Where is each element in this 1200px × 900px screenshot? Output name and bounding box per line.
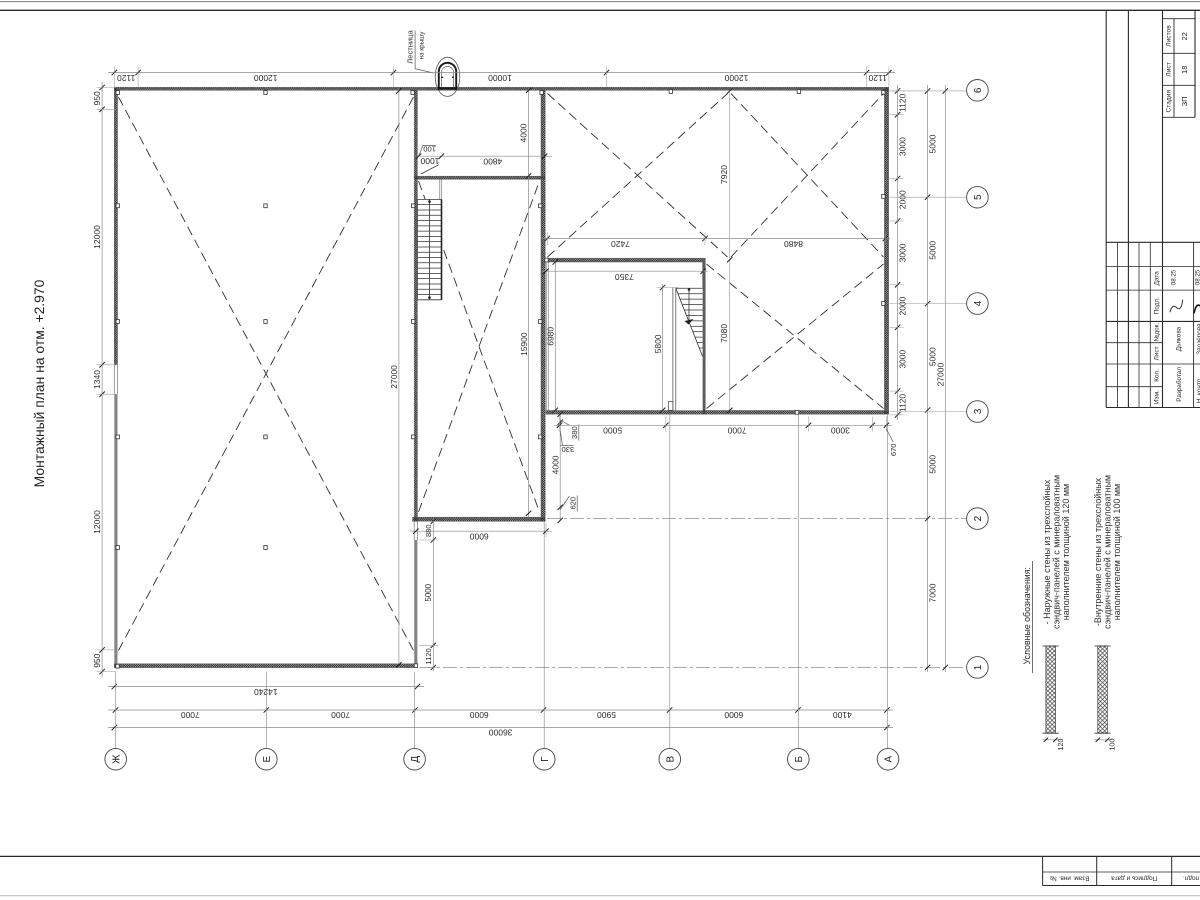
svg-text:наполнителем толщиной 120 мм: наполнителем толщиной 120 мм (1061, 484, 1071, 621)
svg-text:Заозёрова: Заозёрова (1196, 323, 1200, 355)
svg-text:6000: 6000 (469, 710, 488, 720)
svg-text:6000: 6000 (724, 710, 743, 720)
svg-text:-Внутренние стены из трехслойн: -Внутренние стены из трехслойных (1093, 477, 1103, 626)
svg-text:1: 1 (973, 664, 984, 670)
svg-text:1120: 1120 (897, 394, 907, 413)
svg-text:6000: 6000 (469, 531, 488, 541)
svg-text:22: 22 (1180, 32, 1189, 40)
svg-text:1120: 1120 (117, 73, 136, 83)
svg-text:6980: 6980 (546, 327, 556, 346)
svg-text:950: 950 (92, 653, 102, 667)
svg-text:08.25: 08.25 (1171, 269, 1178, 285)
svg-text:1340: 1340 (92, 370, 102, 389)
svg-text:7000: 7000 (927, 583, 937, 602)
svg-text:08.25: 08.25 (1195, 269, 1200, 285)
svg-text:Монтажный план на отм. +2.970: Монтажный план на отм. +2.970 (31, 279, 47, 487)
svg-text:330: 330 (562, 445, 575, 454)
svg-text:6: 6 (973, 87, 984, 93)
svg-text:5000: 5000 (927, 455, 937, 474)
svg-text:950: 950 (92, 91, 102, 105)
svg-text:Разработал: Разработал (1175, 367, 1183, 402)
svg-text:4000: 4000 (519, 123, 529, 142)
svg-text:12000: 12000 (92, 510, 102, 534)
svg-text:5000: 5000 (424, 583, 433, 601)
svg-text:3000: 3000 (897, 243, 907, 262)
svg-text:36000: 36000 (489, 728, 513, 738)
svg-text:Н. контр.: Н. контр. (1196, 377, 1200, 404)
svg-text:Е: Е (262, 756, 273, 763)
svg-text:4100: 4100 (833, 710, 852, 720)
svg-text:Дьякова: Дьякова (1175, 326, 1182, 351)
svg-text:4: 4 (973, 300, 984, 306)
svg-text:100: 100 (1108, 739, 1117, 751)
svg-text:670: 670 (889, 443, 898, 456)
svg-text:Изм.: Изм. (1154, 390, 1161, 404)
svg-text:7000: 7000 (331, 710, 350, 720)
svg-text:10000: 10000 (488, 73, 512, 83)
svg-text:Подп.: Подп. (1154, 297, 1161, 314)
svg-text:№док.: №док. (1154, 323, 1161, 342)
svg-text:12000: 12000 (92, 225, 102, 249)
svg-text:4000: 4000 (550, 455, 560, 474)
svg-text:2000: 2000 (897, 296, 907, 315)
svg-text:Условные обозначения:: Условные обозначения: (1022, 567, 1032, 664)
svg-text:880: 880 (424, 524, 433, 537)
svg-text:7080: 7080 (719, 324, 729, 343)
svg-text:2: 2 (973, 515, 984, 521)
svg-text:Кол.: Кол. (1154, 369, 1161, 382)
svg-text:7000: 7000 (727, 426, 746, 436)
svg-text:620: 620 (568, 497, 577, 510)
svg-text:Взам. инв. №: Взам. инв. № (1050, 875, 1090, 882)
svg-text:8480: 8480 (784, 239, 803, 249)
svg-text:15900: 15900 (519, 332, 529, 356)
svg-text:5900: 5900 (597, 710, 616, 720)
svg-text:Ж: Ж (111, 754, 122, 764)
svg-text:1120: 1120 (897, 93, 907, 112)
svg-text:сэндвич-панелей с минераловатн: сэндвич-панелей с минераловатным (1052, 475, 1062, 629)
svg-text:подл.: подл. (1183, 875, 1199, 882)
svg-text:5: 5 (973, 194, 984, 200)
svg-text:7920: 7920 (719, 165, 729, 184)
svg-text:2000: 2000 (897, 190, 907, 209)
svg-text:Дата: Дата (1154, 271, 1161, 286)
svg-text:Д: Д (410, 756, 421, 763)
svg-text:3000: 3000 (831, 426, 850, 436)
svg-text:3000: 3000 (897, 137, 907, 156)
svg-text:5000: 5000 (927, 134, 937, 153)
svg-text:Лестница: Лестница (405, 29, 414, 63)
svg-text:380: 380 (570, 426, 579, 439)
svg-text:7420: 7420 (611, 239, 630, 249)
svg-text:14240: 14240 (254, 687, 278, 697)
svg-text:3000: 3000 (897, 349, 907, 368)
svg-text:А: А (884, 756, 895, 763)
svg-text:Стадия: Стадия (1166, 90, 1173, 113)
svg-text:12000: 12000 (724, 73, 748, 83)
svg-text:18: 18 (1180, 65, 1189, 73)
svg-text:7350: 7350 (615, 272, 634, 282)
svg-text:4800: 4800 (483, 156, 502, 166)
svg-text:Листов: Листов (1166, 25, 1173, 47)
svg-text:на крышу: на крышу (418, 31, 425, 60)
svg-text:27000: 27000 (936, 363, 946, 387)
svg-text:В: В (665, 756, 676, 763)
svg-text:- Наружные стены из трехслойны: - Наружные стены из трехслойных (1042, 479, 1052, 624)
svg-text:27000: 27000 (389, 365, 399, 389)
svg-text:Подпись и дата: Подпись и дата (1111, 875, 1157, 882)
svg-text:Лист: Лист (1154, 346, 1161, 360)
svg-text:наполнителем толщиной 100 мм: наполнителем толщиной 100 мм (1112, 484, 1122, 621)
svg-text:ЗП: ЗП (1180, 96, 1189, 106)
svg-text:Лист: Лист (1166, 62, 1173, 76)
svg-text:1000: 1000 (420, 156, 439, 166)
svg-text:Б: Б (794, 755, 805, 762)
svg-text:5800: 5800 (653, 334, 663, 353)
svg-text:120: 120 (1056, 739, 1065, 751)
svg-text:Г: Г (540, 756, 551, 762)
svg-text:5000: 5000 (927, 241, 937, 260)
svg-text:сэндвич-панелей с минераловатн: сэндвич-панелей с минераловатным (1103, 475, 1113, 629)
svg-text:1120: 1120 (424, 648, 433, 664)
svg-text:3: 3 (973, 408, 984, 414)
svg-text:5000: 5000 (603, 426, 622, 436)
svg-text:12000: 12000 (254, 73, 278, 83)
svg-text:7000: 7000 (181, 710, 200, 720)
svg-text:1120: 1120 (868, 73, 887, 83)
